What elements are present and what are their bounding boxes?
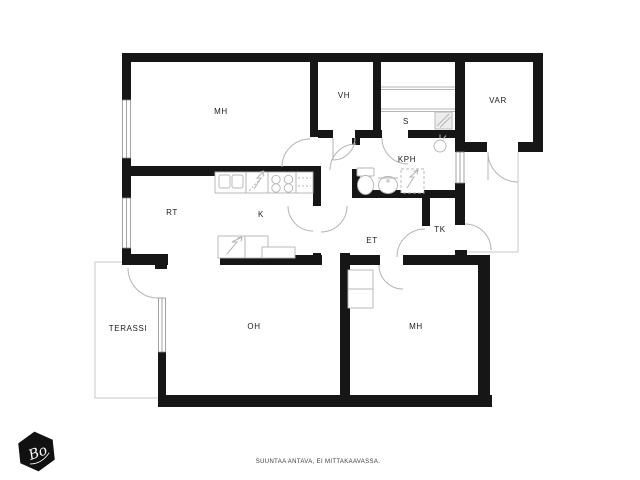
room-label-s: S	[403, 117, 409, 126]
room-label-k: K	[258, 210, 264, 219]
door-arc-storage	[488, 152, 518, 182]
sink-icon	[378, 177, 398, 194]
room-label-rt: RT	[166, 208, 178, 217]
room-label-vh: VH	[338, 91, 350, 100]
wardrobe-icon	[348, 270, 373, 308]
floor-plan-page: MH VH S VAR KPH RT K ET TK OH MH TERASSI…	[0, 0, 640, 480]
room-label-et: ET	[366, 236, 377, 245]
sauna-stove-icon	[435, 112, 452, 129]
door-arc-bedroom1	[282, 139, 310, 167]
door-arc-vestibule-outer	[465, 224, 491, 250]
washing-machine-icon	[401, 169, 424, 193]
sauna-benches-icon	[381, 87, 455, 112]
kitchen-lower-cabinet	[262, 247, 295, 258]
walls	[122, 53, 543, 407]
room-label-oh: OH	[247, 322, 260, 331]
window	[123, 198, 131, 248]
toilet-icon	[357, 168, 374, 195]
door-arc-closet	[333, 138, 355, 160]
room-label-tk: TK	[434, 225, 445, 234]
fridge-icon	[218, 236, 268, 258]
room-label-var: VAR	[489, 96, 507, 105]
room-label-kph: KPH	[398, 155, 416, 164]
window	[159, 298, 166, 352]
door-arc-terrace	[128, 268, 158, 298]
door-arc-kitchen-et	[321, 206, 347, 232]
door-arc-bedroom2	[379, 265, 403, 289]
door-arc-bathroom	[330, 144, 356, 170]
window	[123, 100, 131, 158]
window	[456, 152, 464, 183]
door-arc-kitchen-in	[288, 206, 313, 231]
room-label-mh1: MH	[214, 107, 228, 116]
door-arc-vestibule-inner	[397, 229, 425, 257]
bo-logo: Bo	[17, 430, 56, 473]
disclaimer-text: SUUNTAA ANTAVA, EI MITTAKAAVASSA.	[256, 459, 380, 465]
room-label-mh2: MH	[409, 322, 423, 331]
floor-plan-canvas: MH VH S VAR KPH RT K ET TK OH MH TERASSI…	[0, 0, 640, 480]
room-label-terassi: TERASSI	[109, 324, 147, 333]
